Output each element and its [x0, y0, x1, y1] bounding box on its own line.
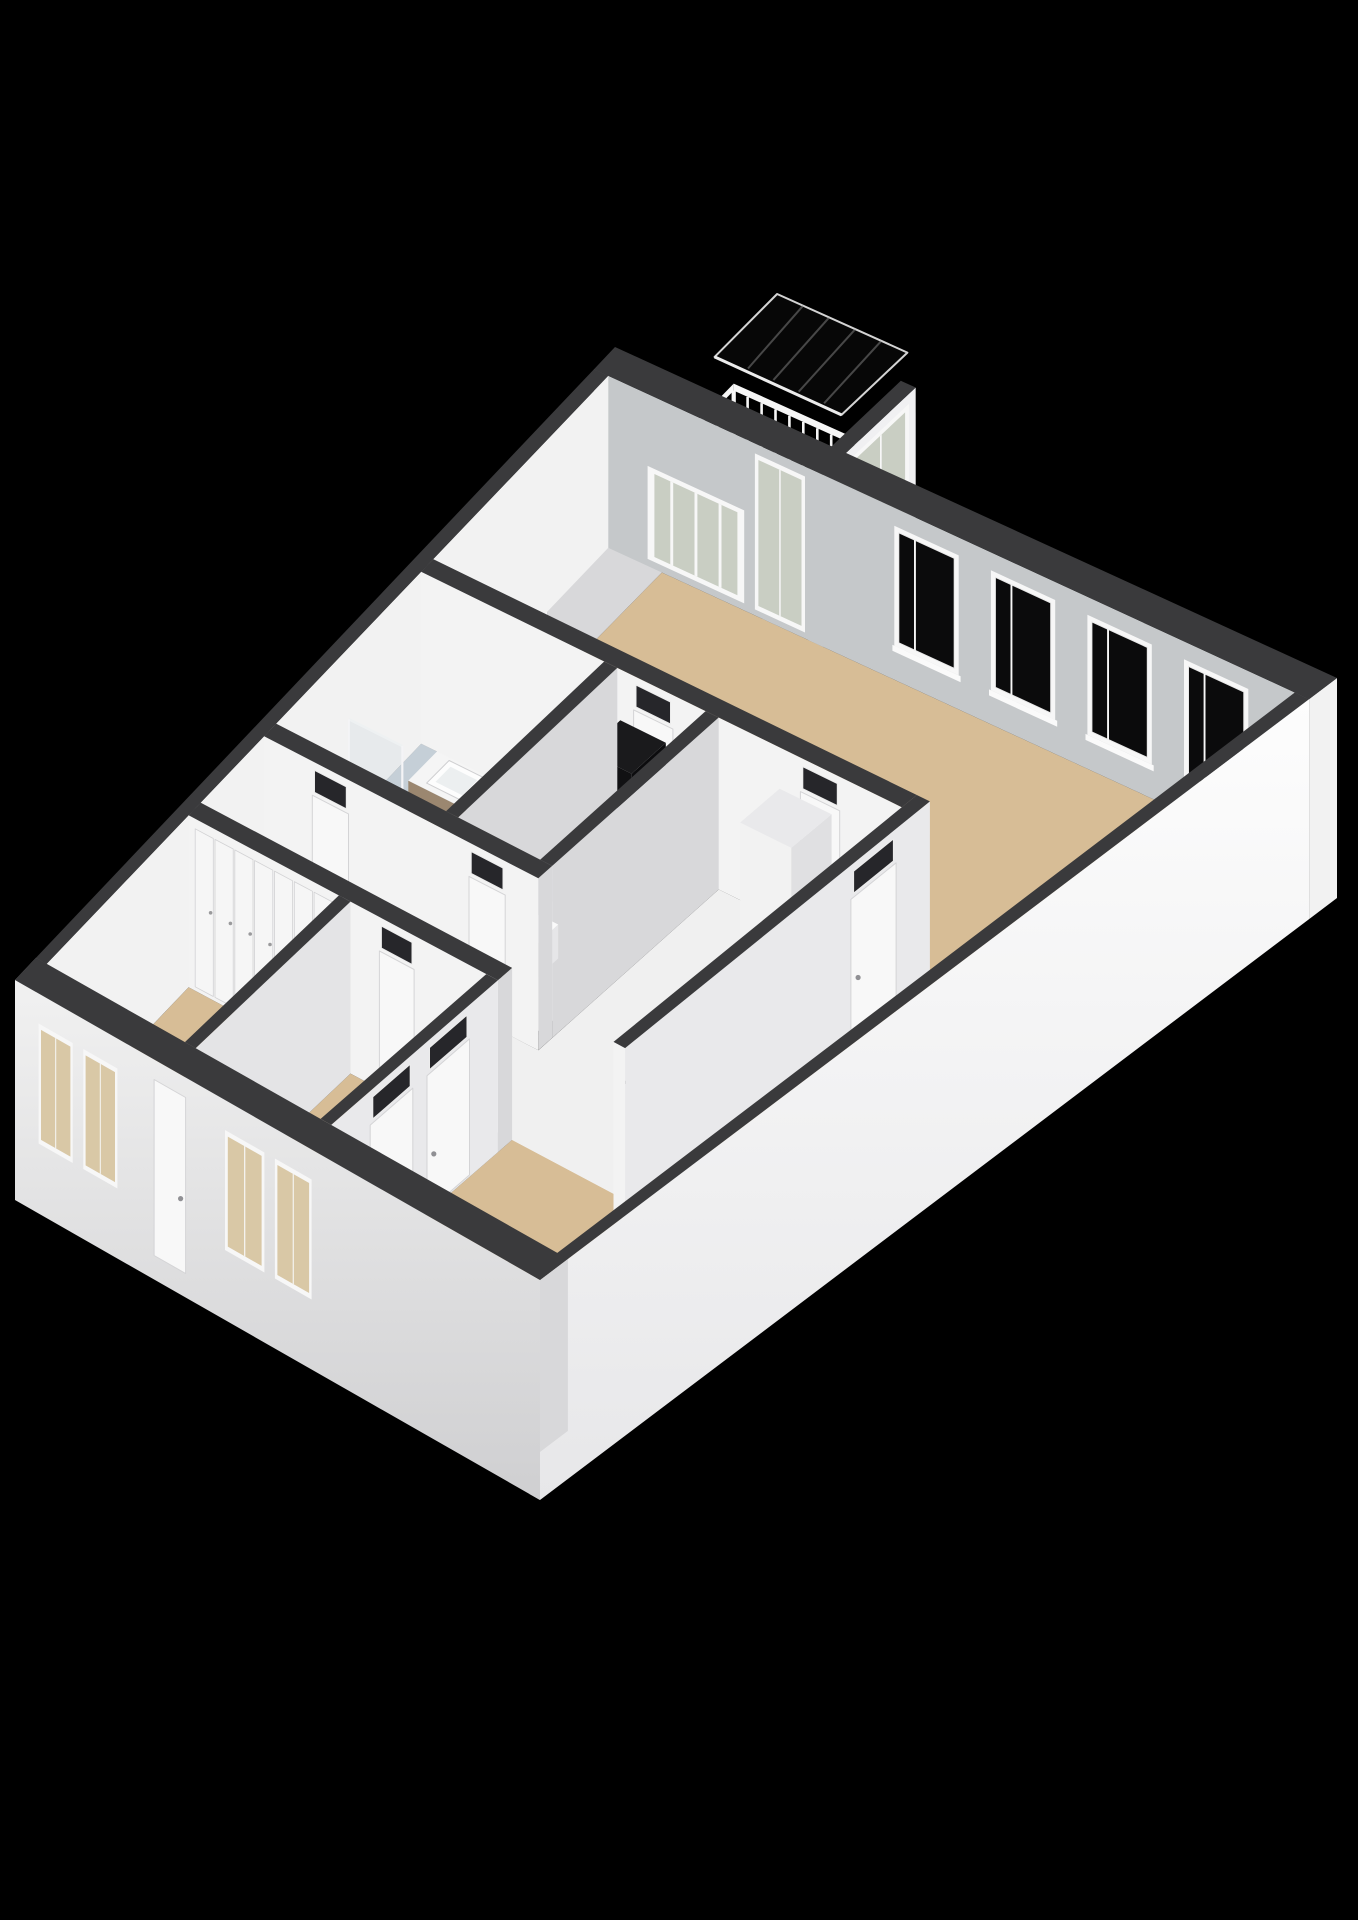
floorplan-3d-render: [0, 0, 1358, 1920]
floorplan-page: [0, 0, 1358, 1920]
